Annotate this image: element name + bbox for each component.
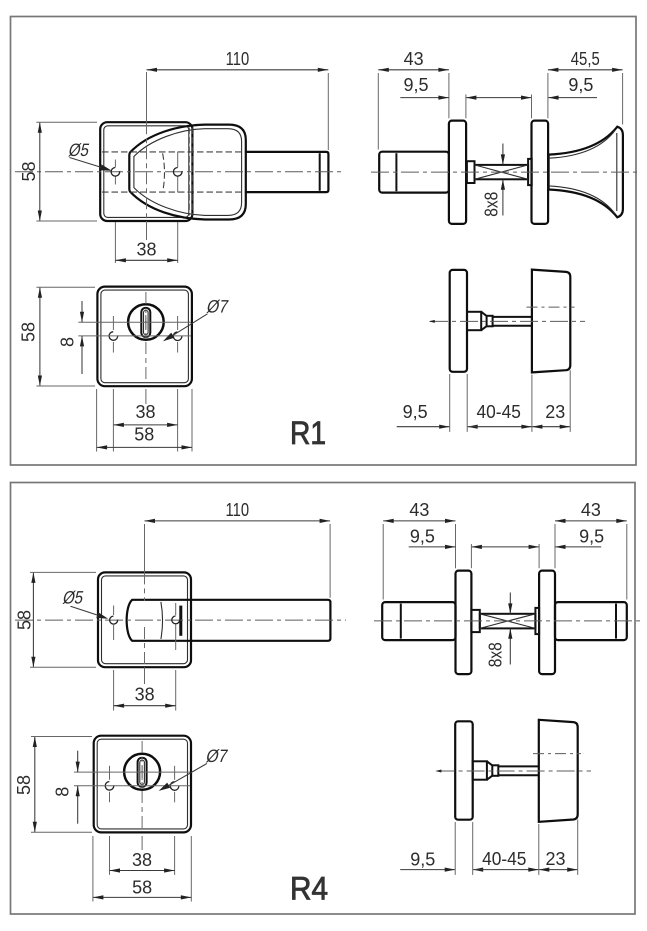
svg-text:9,5: 9,5: [410, 849, 435, 869]
svg-text:40-45: 40-45: [482, 849, 526, 869]
svg-text:Ø5: Ø5: [67, 140, 91, 160]
svg-text:8x8: 8x8: [481, 192, 501, 217]
svg-text:8: 8: [52, 787, 72, 797]
svg-text:58: 58: [134, 425, 154, 445]
svg-text:9,5: 9,5: [410, 526, 435, 546]
svg-text:8: 8: [58, 337, 78, 347]
svg-text:23: 23: [545, 402, 565, 422]
svg-text:38: 38: [136, 402, 156, 422]
svg-text:Ø7: Ø7: [204, 746, 229, 766]
svg-text:Ø7: Ø7: [205, 297, 230, 317]
svg-text:Ø5: Ø5: [61, 588, 85, 608]
svg-text:8x8: 8x8: [485, 642, 505, 667]
svg-text:9,5: 9,5: [568, 75, 593, 95]
svg-text:43: 43: [581, 500, 601, 520]
svg-text:110: 110: [226, 49, 250, 69]
svg-text:38: 38: [135, 685, 155, 705]
svg-text:45,5: 45,5: [571, 49, 600, 69]
svg-text:9,5: 9,5: [403, 75, 428, 95]
svg-text:58: 58: [14, 610, 34, 630]
svg-text:40-45: 40-45: [477, 402, 521, 422]
svg-text:38: 38: [132, 850, 152, 870]
svg-text:23: 23: [546, 849, 566, 869]
svg-text:110: 110: [226, 500, 250, 520]
svg-text:43: 43: [409, 500, 429, 520]
svg-text:9,5: 9,5: [579, 526, 604, 546]
svg-text:43: 43: [404, 49, 424, 69]
svg-text:58: 58: [19, 161, 39, 181]
svg-text:R4: R4: [290, 871, 328, 907]
svg-text:38: 38: [137, 240, 157, 260]
svg-text:58: 58: [14, 775, 34, 795]
svg-text:58: 58: [132, 878, 152, 898]
svg-text:R1: R1: [290, 415, 326, 451]
svg-text:58: 58: [18, 322, 38, 342]
svg-text:9,5: 9,5: [403, 402, 428, 422]
